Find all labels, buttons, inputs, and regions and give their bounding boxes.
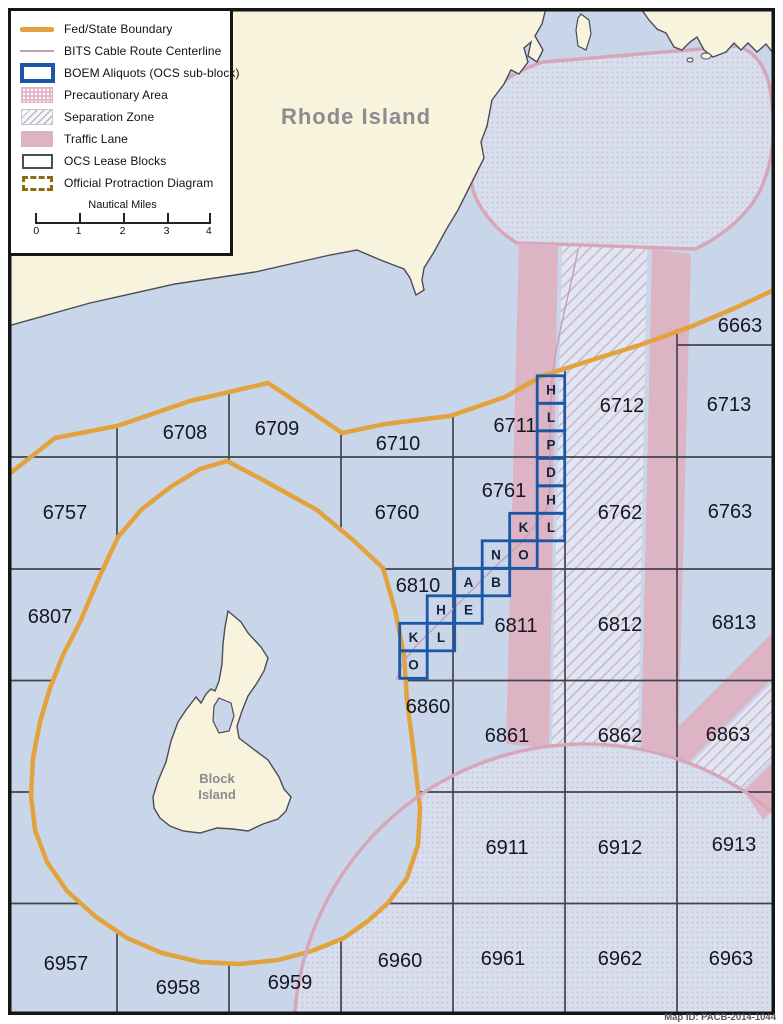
scale-tick: 4 [206,225,212,237]
legend-item-separation-zone: Separation Zone [19,106,226,128]
lease-block-number-6860: 6860 [406,696,451,718]
lease-block-number-6959: 6959 [268,972,313,994]
aliquot-letter: A [464,575,474,590]
lease-block-number-6958: 6958 [156,977,201,999]
lease-block-number-6911: 6911 [485,837,528,859]
legend-item-bits-cable: BITS Cable Route Centerline [19,40,226,62]
lease-block-number-6862: 6862 [598,725,643,747]
block-island-label-line1: Block [199,771,235,786]
aliquot-letter: B [491,575,501,590]
scale-bar: Nautical Miles 0 1 2 3 4 [19,199,226,238]
lease-block-number-6960: 6960 [378,950,423,972]
legend-item-label: OCS Lease Blocks [64,154,166,168]
aliquot-letter: K [409,630,419,645]
scale-bar-ticks: 0 1 2 3 4 [35,225,211,238]
lease-block-number-6861: 6861 [485,725,530,747]
aliquot-letter: P [546,438,555,453]
lease-block-number-6863: 6863 [706,724,751,746]
rhode-island-label: Rhode Island [281,104,431,129]
aliquot-letter: L [437,630,445,645]
scale-tick: 2 [120,225,126,237]
aliquot-letter: E [464,603,473,618]
lease-block-number-6762: 6762 [598,502,643,524]
map-id-text: Map ID: PACB-2014-1044 [664,1012,776,1023]
coastal-islet [687,58,693,62]
legend-item-label: Fed/State Boundary [64,22,173,36]
legend-box: Fed/State Boundary BITS Cable Route Cent… [8,8,233,256]
scale-tick: 1 [76,225,82,237]
lease-block-number-6810: 6810 [396,575,441,597]
boem-aliquot-swatch [20,63,55,83]
legend-item-precautionary-area: Precautionary Area [19,84,226,106]
lease-block-number-6709: 6709 [255,418,300,440]
aliquot-letter: L [547,520,555,535]
aliquot-letter: O [408,658,419,673]
aliquot-letter: H [436,603,446,618]
scale-bar-line [35,213,211,224]
ocs-lease-block-swatch [22,154,53,169]
scale-tick: 3 [164,225,170,237]
lease-block-number-6912: 6912 [598,837,643,859]
legend-item-label: BITS Cable Route Centerline [64,44,221,58]
lease-block-number-6710: 6710 [376,433,421,455]
legend-item-label: Official Protraction Diagram [64,176,213,190]
separation-zone-center [552,246,647,748]
lease-block-number-6711: 6711 [493,415,536,437]
lease-block-number-6963: 6963 [709,948,754,970]
lease-block-number-6811: 6811 [494,615,537,637]
aliquot-letter: D [546,465,556,480]
lease-block-number-6763: 6763 [708,501,753,523]
lease-block-number-6807: 6807 [28,606,73,628]
lease-block-number-6761: 6761 [482,480,527,502]
protraction-diagram-swatch [22,176,53,191]
lease-block-number-6760: 6760 [375,502,420,524]
legend-item-label: Traffic Lane [64,132,128,146]
lease-block-number-6957: 6957 [44,953,89,975]
lease-block-number-6961: 6961 [481,948,526,970]
aliquot-letter: H [546,493,556,508]
lease-block-number-6812: 6812 [598,614,643,636]
lease-block-number-6913: 6913 [712,834,757,856]
aliquot-letter: L [547,410,555,425]
legend-item-label: Precautionary Area [64,88,168,102]
aliquot-letter: N [491,548,501,563]
lease-block-number-6712: 6712 [600,395,645,417]
coastal-islet [701,53,711,59]
map-page: HLPDHKLNOABHEKLO 66636708670967106711671… [0,0,783,1024]
lease-block-number-6708: 6708 [163,422,208,444]
aliquot-letter: H [546,383,556,398]
cable-centerline-swatch [20,50,54,52]
legend-item-fed-state-boundary: Fed/State Boundary [19,18,226,40]
block-island-label-line2: Island [198,787,236,802]
scale-tick: 0 [33,225,39,237]
legend-item-boem-aliquots: BOEM Aliquots (OCS sub-block) [19,62,226,84]
scale-bar-title: Nautical Miles [19,199,226,211]
legend-item-ocs-lease-blocks: OCS Lease Blocks [19,150,226,172]
traffic-lane-swatch [21,131,53,147]
precautionary-area-north [470,46,773,249]
legend-item-label: BOEM Aliquots (OCS sub-block) [64,66,240,80]
lease-block-number-6713: 6713 [707,394,752,416]
lease-block-number-6813: 6813 [712,612,757,634]
lease-block-number-6757: 6757 [43,502,88,524]
aliquot-letter: O [518,548,529,563]
lease-block-number-6962: 6962 [598,948,643,970]
lease-block-number-6663: 6663 [718,315,763,337]
fed-state-boundary-swatch [20,27,54,32]
legend-item-protraction-diagram: Official Protraction Diagram [19,172,226,194]
separation-zone-swatch [21,109,53,125]
precautionary-area-swatch [21,87,53,103]
legend-item-traffic-lane: Traffic Lane [19,128,226,150]
aliquot-letter: K [519,520,529,535]
legend-item-label: Separation Zone [64,110,154,124]
